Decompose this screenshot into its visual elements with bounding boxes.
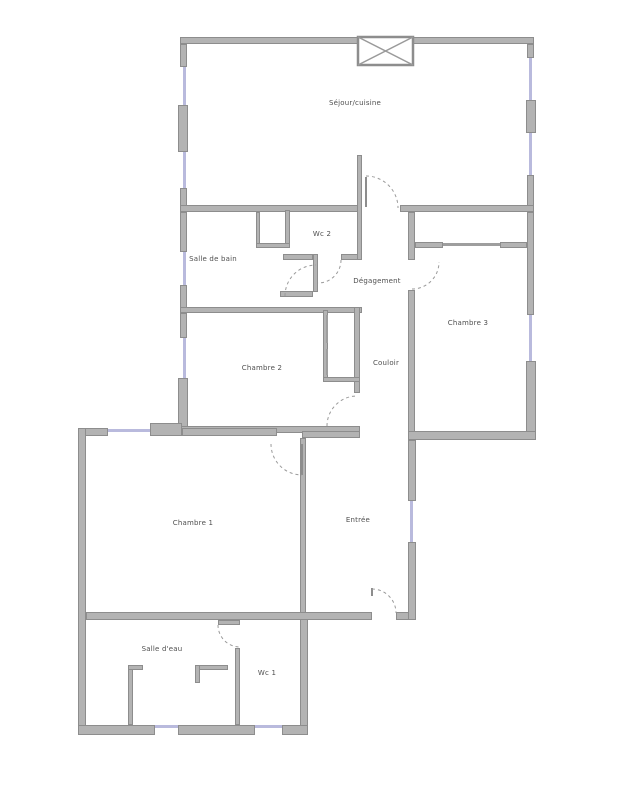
- room-label-sejour-cuisine: Séjour/cuisine: [329, 99, 381, 107]
- door-arc: [327, 396, 357, 426]
- closet-door-line: [326, 315, 328, 343]
- wall-segment: [408, 212, 415, 260]
- room-label-wc-1: Wc 1: [258, 669, 276, 677]
- wall-segment: [78, 725, 155, 735]
- room-label-salle-de-bain: Salle de bain: [189, 255, 237, 263]
- door-arc: [318, 260, 341, 283]
- wall-segment: [323, 377, 360, 382]
- wall-segment: [180, 37, 534, 44]
- wall-segment: [178, 105, 188, 152]
- room-label-chambre-2: Chambre 2: [242, 364, 282, 372]
- wall-segment: [408, 290, 415, 432]
- window-marker: [183, 252, 186, 285]
- room-label-entree: Entrée: [346, 516, 370, 524]
- wall-segment: [235, 648, 240, 725]
- room-label-wc-2: Wc 2: [313, 230, 331, 238]
- door-arc: [271, 444, 302, 475]
- wall-segment: [78, 428, 86, 735]
- door-arc: [372, 588, 396, 613]
- room-label-degagement: Dégagement: [353, 277, 401, 285]
- window-marker: [410, 501, 413, 542]
- door-arc: [412, 262, 439, 289]
- wall-segment: [526, 361, 536, 432]
- window-marker: [183, 338, 186, 378]
- wall-segment: [282, 725, 308, 735]
- door-and-symbol-overlay: [0, 0, 640, 800]
- wall-segment: [128, 665, 133, 725]
- wall-segment: [313, 254, 318, 292]
- wall-segment: [415, 242, 443, 248]
- wall-segment: [400, 205, 534, 212]
- wall-segment: [256, 243, 290, 248]
- window-marker: [529, 58, 532, 100]
- wall-segment: [195, 665, 200, 683]
- wall-segment: [280, 291, 313, 297]
- wall-segment: [180, 313, 187, 338]
- wall-segment: [357, 155, 362, 260]
- door-leaf: [218, 620, 240, 625]
- wall-segment: [182, 428, 277, 436]
- window-marker: [255, 725, 282, 728]
- wall-segment: [408, 542, 416, 620]
- wall-segment: [527, 44, 534, 58]
- wall-segment: [128, 665, 143, 670]
- wall-segment: [408, 440, 416, 501]
- room-label-chambre-1: Chambre 1: [173, 519, 213, 527]
- room-label-chambre-3: Chambre 3: [448, 319, 488, 327]
- wall-segment: [302, 431, 360, 438]
- wall-segment: [180, 44, 187, 67]
- window-marker: [155, 725, 178, 728]
- wall-segment: [500, 242, 527, 248]
- wall-segment: [526, 100, 536, 133]
- window-marker: [529, 133, 532, 175]
- wall-segment: [178, 725, 255, 735]
- door-arc: [218, 625, 240, 647]
- wall-segment: [341, 254, 358, 260]
- partition-line: [443, 243, 500, 246]
- door-arc: [366, 176, 398, 208]
- floor-plan: Séjour/cuisine Wc 2 Salle de bain Dégage…: [0, 0, 640, 800]
- wall-segment: [86, 612, 372, 620]
- wall-segment: [180, 212, 187, 252]
- window-marker: [529, 315, 532, 361]
- wall-segment: [283, 254, 313, 260]
- wall-segment: [300, 438, 306, 613]
- wall-segment: [180, 205, 362, 212]
- wall-segment: [527, 212, 534, 315]
- wall-segment: [150, 423, 182, 436]
- room-label-salle-deau: Salle d'eau: [142, 645, 183, 653]
- window-marker: [108, 429, 150, 432]
- wall-segment: [408, 431, 536, 440]
- closet-door-line: [326, 349, 328, 375]
- window-marker: [183, 152, 186, 188]
- wall-segment: [180, 307, 362, 313]
- wall-segment: [300, 613, 308, 735]
- window-marker: [183, 67, 186, 105]
- room-label-couloir: Couloir: [373, 359, 399, 367]
